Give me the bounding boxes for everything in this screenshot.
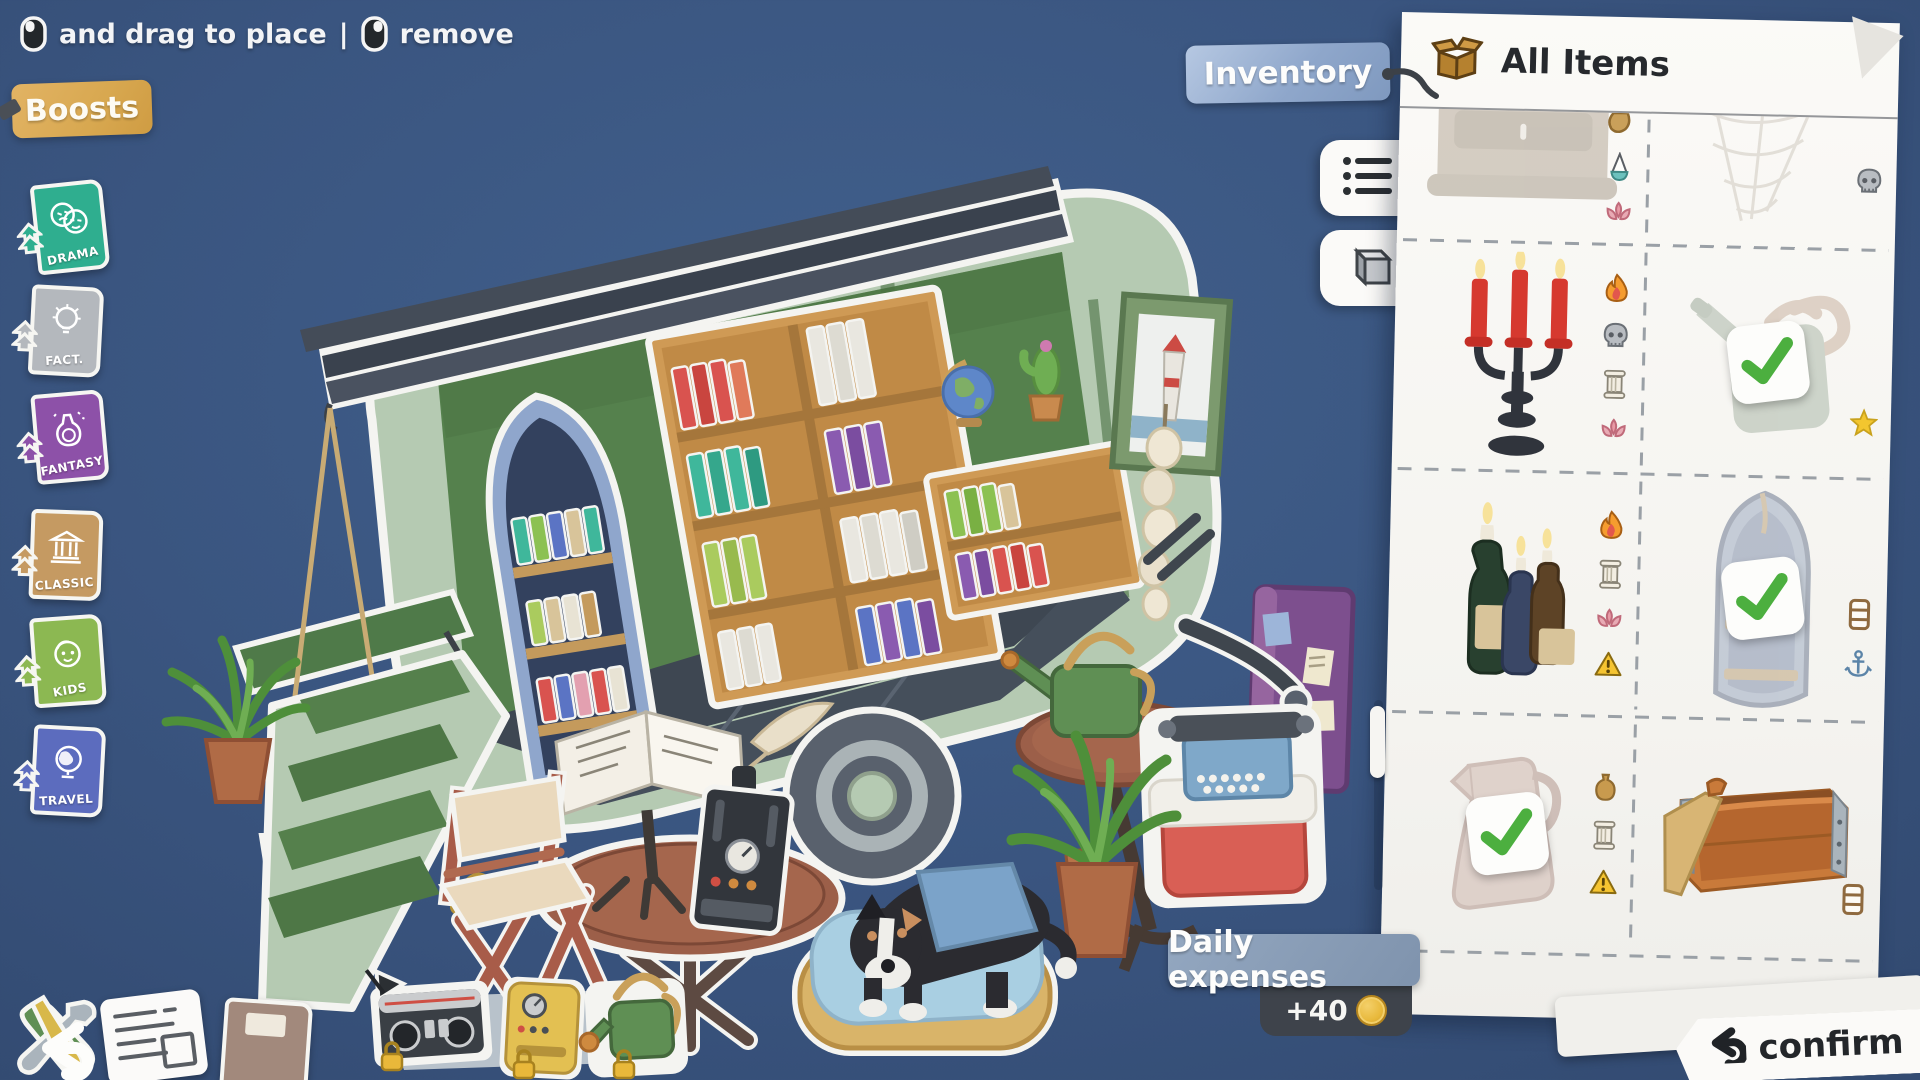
boosts-label: Boosts <box>24 90 139 129</box>
boost-up-arrow-icon <box>11 319 39 356</box>
inventory-item-bottle-candles[interactable] <box>1386 470 1639 716</box>
locked-items <box>350 950 690 1080</box>
coin-icon <box>1356 995 1387 1026</box>
column-icon <box>1590 820 1617 855</box>
inventory-item-watering-can[interactable] <box>1642 247 1895 479</box>
inventory-scroll-thumb[interactable] <box>1370 706 1385 778</box>
lotus-icon <box>1604 201 1633 230</box>
lightbulb-icon <box>33 288 100 354</box>
left-mouse-button-icon <box>20 16 47 52</box>
drama-masks-icon <box>34 183 104 252</box>
globe-icon <box>35 728 102 794</box>
skull-icon <box>1855 167 1884 200</box>
potion-icon <box>35 393 104 461</box>
child-face-icon <box>33 618 101 685</box>
check-icon <box>1720 555 1807 642</box>
shelf-icon <box>1841 883 1866 920</box>
oil-lamp-icon <box>1607 152 1632 187</box>
inventory-item-storage-chest[interactable] <box>1397 108 1647 244</box>
inventory-item-boat-bookshelf[interactable] <box>1637 476 1890 722</box>
lotus-icon <box>1599 417 1628 446</box>
boost-book-fact[interactable]: FACT. <box>28 284 105 378</box>
boost-book-fantasy[interactable]: FANTASY <box>30 389 110 485</box>
daily-expenses-tag: Daily expenses <box>1168 934 1420 986</box>
boosts-tag: Boosts <box>11 80 153 139</box>
temple-icon <box>33 513 99 578</box>
boost-up-arrow-icon <box>15 221 45 260</box>
right-mouse-button-icon <box>361 16 388 52</box>
inventory-grid <box>1380 108 1897 979</box>
inventory-header: All Items <box>1400 12 1900 119</box>
tag-string <box>1382 56 1442 106</box>
flame-icon <box>1598 509 1625 544</box>
vase-icon <box>1593 773 1618 806</box>
hint-separator: | <box>339 19 349 50</box>
inventory-item-candelabra[interactable] <box>1392 241 1645 473</box>
column-icon <box>1596 558 1623 593</box>
hint-right-text: remove <box>400 19 514 50</box>
coffee-machine-sticker[interactable] <box>499 976 586 1080</box>
boost-up-arrow-icon <box>14 654 42 692</box>
black-radio-device[interactable] <box>691 786 793 934</box>
confirm-label: confirm <box>1758 1022 1905 1068</box>
lotus-icon <box>1594 607 1623 636</box>
bag-icon <box>1607 113 1634 138</box>
check-icon <box>1464 790 1551 877</box>
tools-back-button[interactable] <box>14 990 102 1080</box>
newspaper-sticker[interactable] <box>99 988 209 1080</box>
boost-up-arrow-icon <box>11 544 38 581</box>
journal-sticker[interactable] <box>219 997 313 1080</box>
skull-icon <box>1601 321 1630 354</box>
anchor-icon <box>1844 649 1873 684</box>
inventory-item-wooden-crate[interactable] <box>1631 719 1884 961</box>
typewriter-on-red-box[interactable] <box>1138 703 1327 909</box>
boost-book-classic[interactable]: CLASSIC <box>28 509 103 601</box>
confirm-button[interactable]: confirm <box>1675 1008 1920 1080</box>
hint-left-text: and drag to place <box>59 19 327 50</box>
flame-icon <box>1603 272 1630 307</box>
star-icon <box>1849 408 1878 441</box>
inventory-panel: All Items <box>1379 12 1900 1025</box>
undo-arrow-icon <box>1708 1026 1748 1073</box>
low-bookshelf[interactable] <box>925 443 1143 619</box>
inventory-tag[interactable]: Inventory <box>1186 42 1391 104</box>
list-view-icon <box>1342 155 1394 201</box>
boost-book-drama[interactable]: DRAMA <box>29 178 110 275</box>
warning-icon <box>1588 868 1617 899</box>
boost-up-arrow-icon <box>15 430 44 468</box>
expense-amount-value: +40 <box>1285 994 1347 1027</box>
column-icon <box>1601 368 1628 403</box>
boost-book-kids[interactable]: KIDS <box>29 614 107 709</box>
daily-expenses-label: Daily expenses <box>1168 925 1420 995</box>
inventory-tag-label: Inventory <box>1203 54 1372 93</box>
inventory-item-spider-web[interactable] <box>1647 114 1897 250</box>
panel-title: All Items <box>1500 41 1670 85</box>
wheel <box>786 710 958 882</box>
check-icon <box>1725 319 1812 406</box>
placement-hint: and drag to place | remove <box>20 16 514 52</box>
warning-icon <box>1593 650 1622 681</box>
cube-view-icon <box>1343 241 1393 295</box>
boost-book-travel[interactable]: TRAVEL <box>30 724 107 818</box>
inventory-item-pitcher[interactable] <box>1381 713 1634 955</box>
shelf-icon <box>1847 598 1872 635</box>
boost-up-arrow-icon <box>13 759 41 796</box>
